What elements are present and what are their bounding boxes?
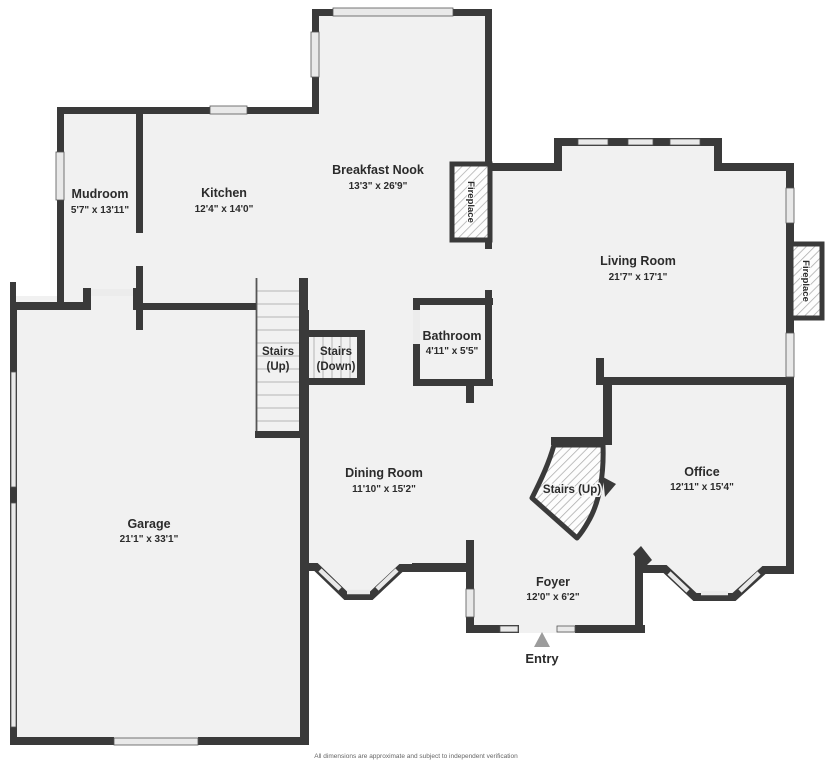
floor-plan-svg: Fireplace Fireplace Stairs (Up) Mudroom … [0,0,832,768]
room-label-kitchen: Kitchen [201,186,247,200]
wall-segment [485,163,562,171]
window [786,333,794,377]
wall-segment [136,107,143,233]
room-dims-office: 12'11" x 15'4" [670,482,734,493]
wall-segment [357,330,365,385]
room-label-foyer: Foyer [536,575,570,589]
window [578,139,608,145]
room-dims-dining-room: 11'10" x 15'2" [352,484,416,495]
wall-segment [466,386,474,403]
fireplace-breakfast-nook: Fireplace [452,164,490,240]
wall-segment [413,298,493,305]
wall-segment [596,358,604,383]
door-opening [413,310,420,344]
wall-segment [142,303,256,310]
wall-segment [10,302,90,310]
wall-segment [306,378,365,385]
window [311,32,319,77]
stairs-up-label-line1: Stairs [262,346,294,358]
window [500,626,518,632]
room-dims-garage: 21'1" x 33'1" [120,534,179,545]
door-opening [91,289,133,296]
wall-segment [596,377,794,385]
wall-segment [57,107,319,114]
room-dims-foyer: 12'0" x 6'2" [526,592,579,603]
wall-segment [413,379,493,386]
window [670,139,700,145]
floors [10,10,792,742]
entry-label: Entry [525,651,559,666]
fireplace-label: Fireplace [465,181,476,223]
wall-segment [300,310,309,744]
room-dims-breakfast-nook: 13'3" x 26'9" [349,181,408,192]
stairs-up-label-line2: (Up) [267,361,290,373]
wall-segment [57,107,64,306]
fireplace-label: Fireplace [800,260,811,302]
wall-segment [786,383,794,574]
stairs-down-label-line2: (Down) [317,361,356,373]
room-dims-bathroom: 4'11" x 5'5" [426,346,479,357]
room-label-breakfast-nook: Breakfast Nook [332,163,424,177]
room-dims-living-room: 21'7" x 17'1" [609,272,668,283]
wall-segment [466,540,474,632]
room-dims-mudroom: 5'7" x 13'11" [71,205,129,216]
window [557,626,575,632]
stairs-down-label-line1: Stairs [320,346,352,358]
room-label-garage: Garage [127,517,170,531]
room-label-mudroom: Mudroom [72,187,129,201]
window [11,503,16,727]
window [466,589,474,617]
window [11,372,16,487]
wall-segment [198,737,309,745]
curved-stairs-label: Stairs (Up) [543,484,601,496]
window [210,106,247,114]
room-label-office: Office [684,465,719,479]
entry-arrow-icon [534,632,550,647]
room-label-bathroom: Bathroom [422,329,481,343]
window [56,152,64,200]
window [628,139,653,145]
room-dims-kitchen: 12'4" x 14'0" [195,204,254,215]
wall-segment [603,385,612,445]
window [786,188,794,223]
garage-door [114,738,198,745]
wall-segment [412,563,470,572]
wall-segment [133,288,141,310]
wall-segment [714,163,794,171]
room-label-living-room: Living Room [600,254,676,268]
window [333,8,453,16]
wall-segment [10,737,114,745]
floor-plan-page: Fireplace Fireplace Stairs (Up) Mudroom … [0,0,832,768]
wall-segment [306,330,365,337]
wall-segment [83,288,91,310]
room-label-dining-room: Dining Room [345,466,423,480]
footer-disclaimer: All dimensions are approximate and subje… [314,753,518,760]
fireplace-living-room: Fireplace [791,244,822,318]
wall-segment [575,625,645,633]
